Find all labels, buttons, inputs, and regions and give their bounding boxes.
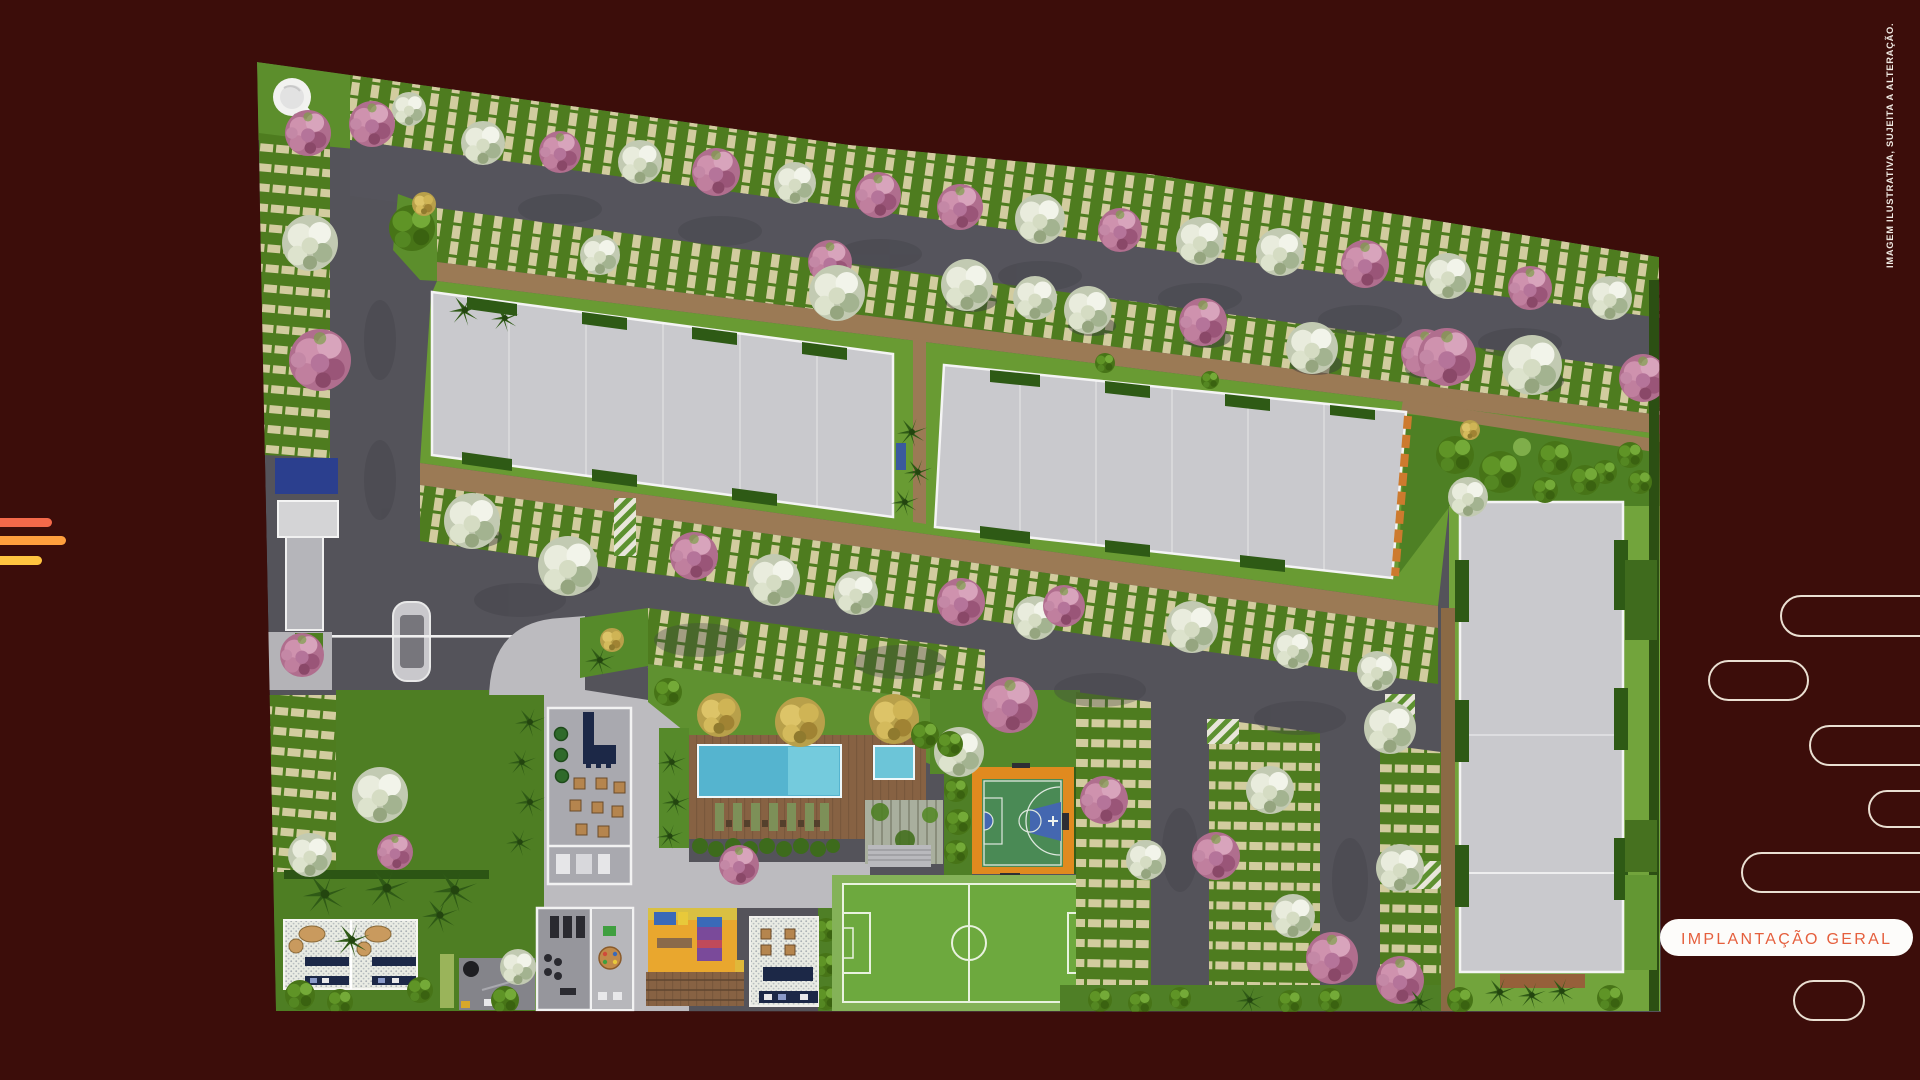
svg-text:IMPLANTAÇÃO GERAL: IMPLANTAÇÃO GERAL (1681, 928, 1892, 948)
svg-text:IMAGEM ILUSTRATIVA, SUJEITA A: IMAGEM ILUSTRATIVA, SUJEITA A ALTERAÇÃO. (1885, 23, 1895, 268)
